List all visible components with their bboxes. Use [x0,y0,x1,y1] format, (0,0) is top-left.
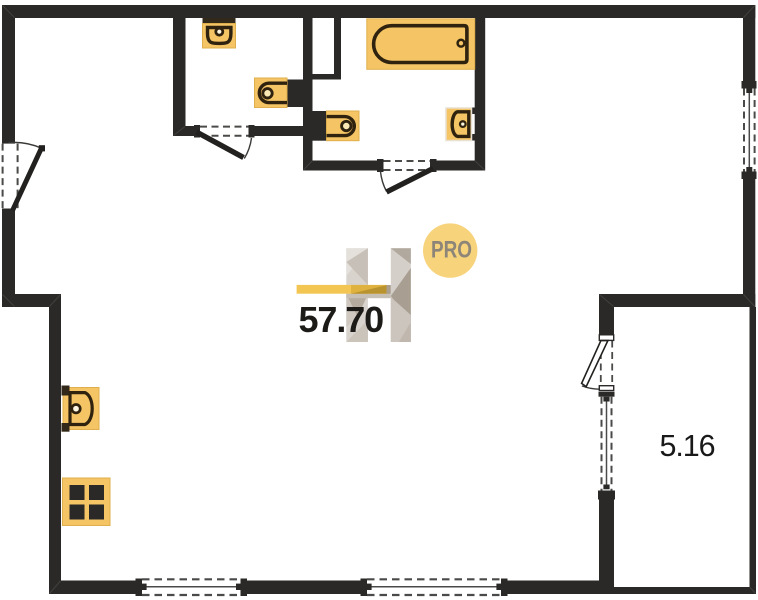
svg-text:PRO: PRO [431,236,472,263]
svg-text:5.16: 5.16 [660,429,715,463]
svg-text:57.70: 57.70 [299,299,384,340]
